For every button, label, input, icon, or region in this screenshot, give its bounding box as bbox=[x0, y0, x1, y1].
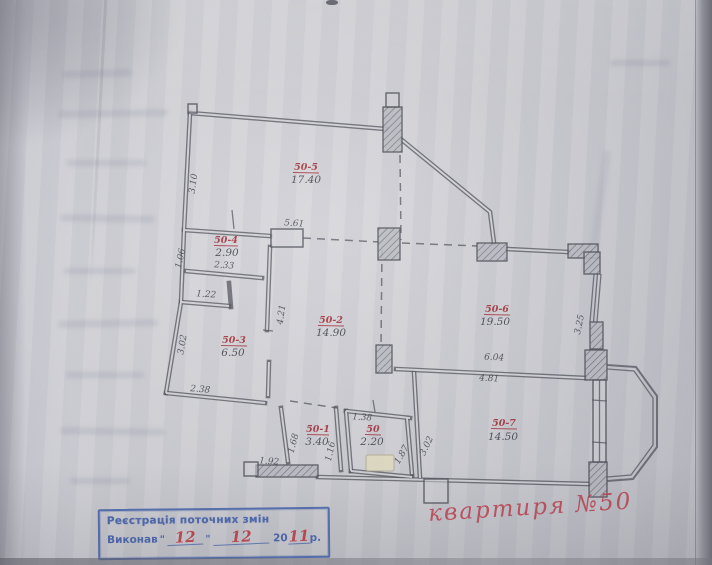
room-code: 50-5 bbox=[294, 162, 318, 173]
floor-plan-drawing: 3.10 5.61 1.06 2.33 1.22 3.02 2.38 4.21 … bbox=[0, 0, 712, 565]
room-label-50-3: 50-3 6.50 bbox=[221, 335, 247, 359]
registration-stamp: Реєстрація поточних змін Виконав " 12 " … bbox=[98, 507, 331, 560]
page-bottom-edge bbox=[0, 558, 712, 565]
dim-label: 1.92 bbox=[259, 456, 280, 467]
stamp-quote-close: " bbox=[205, 534, 210, 545]
room-code: 50-2 bbox=[319, 315, 343, 326]
dim-label: 5.61 bbox=[284, 218, 305, 229]
room-label-50-6: 50-6 19.50 bbox=[480, 304, 510, 328]
dim-label: 4.21 bbox=[276, 304, 289, 326]
room-area: 3.40 bbox=[305, 436, 329, 448]
stamp-label: Виконав bbox=[107, 534, 158, 547]
stamp-filled-row: Виконав " 12 " 12 20 11 р. bbox=[107, 530, 321, 546]
dim-label: 6.04 bbox=[484, 352, 505, 363]
dim-label: 4.81 bbox=[478, 373, 500, 384]
dim-label: 3.02 bbox=[176, 334, 189, 356]
dim-label: 3.02 bbox=[418, 435, 436, 458]
room-area: 17.40 bbox=[291, 174, 321, 186]
scanned-floorplan-photo: 3.10 5.61 1.06 2.33 1.22 3.02 2.38 4.21 … bbox=[0, 0, 712, 565]
dim-label: 3.10 bbox=[188, 173, 201, 195]
room-area: 6.50 bbox=[221, 347, 245, 359]
room-code: 50-1 bbox=[306, 424, 330, 435]
room-label-50-4: 50-4 2.90 bbox=[214, 235, 239, 259]
page-right-edge bbox=[695, 0, 712, 565]
room-area: 14.50 bbox=[488, 431, 518, 443]
stamp-day-value: 12 bbox=[167, 530, 204, 546]
dim-label: 1.22 bbox=[196, 289, 217, 300]
room-code: 50-7 bbox=[492, 418, 516, 429]
window-lower-right bbox=[592, 380, 607, 462]
room-labels: 50-5 17.40 50-4 2.90 50-3 6.50 50-2 14.9… bbox=[214, 162, 518, 448]
stamp-title: Реєстрація поточних змін bbox=[107, 513, 321, 527]
room-code: 50-3 bbox=[222, 335, 246, 346]
stamp-year-prefix: 20 bbox=[273, 532, 288, 544]
dim-label: 2.38 bbox=[189, 384, 211, 396]
room-area: 2.20 bbox=[359, 436, 384, 448]
stamp-year-suffix: р. bbox=[309, 532, 321, 544]
room-label-50-2: 50-2 14.90 bbox=[316, 315, 346, 339]
room-area: 2.90 bbox=[214, 247, 239, 259]
stamp-month-value: 12 bbox=[212, 529, 269, 546]
room-area: 14.90 bbox=[316, 327, 346, 339]
room-code: 50-4 bbox=[214, 235, 238, 246]
dim-label: 3.25 bbox=[573, 313, 587, 335]
dim-label: 1.38 bbox=[352, 412, 373, 423]
room-label-50-1: 50-1 3.40 bbox=[305, 424, 330, 448]
stamp-year-value: 11 bbox=[287, 530, 309, 545]
bath-fixture bbox=[366, 455, 394, 471]
stamp-quote-open: " bbox=[160, 535, 165, 546]
room-area: 19.50 bbox=[480, 316, 510, 328]
room-label-50: 50 2.20 bbox=[359, 424, 384, 448]
dim-label: 1.68 bbox=[287, 432, 302, 454]
window-upper-right bbox=[590, 274, 601, 322]
room-code: 50 bbox=[366, 424, 380, 435]
room-label-50-5: 50-5 17.40 bbox=[291, 162, 321, 186]
dim-label: 1.06 bbox=[174, 247, 188, 269]
room-label-50-7: 50-7 14.50 bbox=[488, 418, 518, 443]
room-code: 50-6 bbox=[485, 304, 509, 315]
bay-window bbox=[607, 365, 657, 481]
dim-label: 2.33 bbox=[213, 260, 235, 271]
